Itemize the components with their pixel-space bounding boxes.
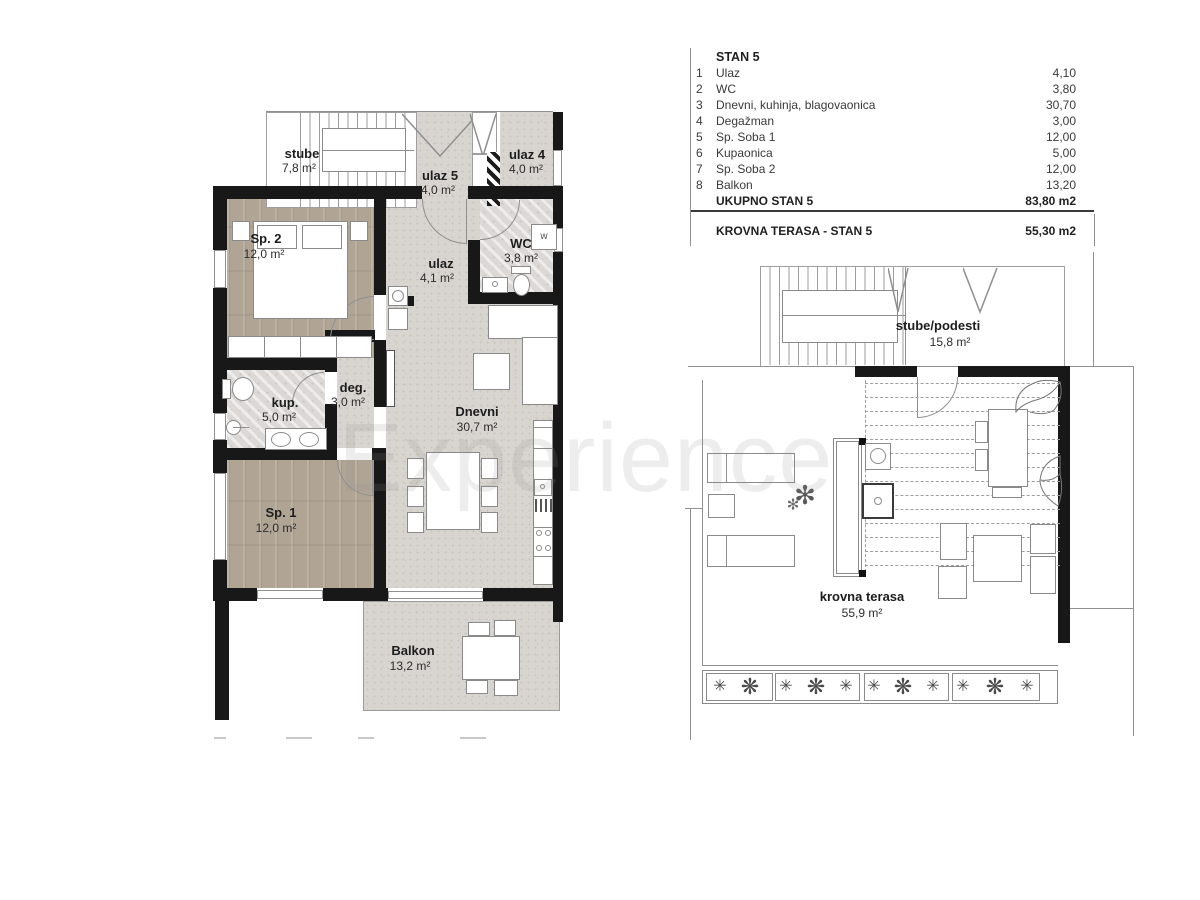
pergola-beam: [865, 495, 1060, 496]
pergola-beam: [865, 439, 1060, 440]
outer-line: [690, 508, 691, 740]
building-edge-line: [1093, 252, 1094, 366]
shrub-icon: ✳: [926, 679, 939, 695]
post: [859, 570, 866, 577]
chair: [975, 421, 988, 443]
grill-knob: [874, 497, 882, 505]
outer-line-right: [1133, 366, 1134, 736]
wall-terrace-top: [855, 366, 917, 377]
terrace-bottom-edge: [702, 665, 1058, 666]
lounger-headrest: [726, 454, 727, 482]
floorplan-sheet: w: [0, 0, 1200, 900]
lounge-table: [973, 535, 1022, 582]
pergola-beam: [865, 481, 1060, 482]
sink-bowl: [870, 448, 886, 464]
plan-right: ✻ ✻ ✳ ❋ ✳ ❋: [0, 0, 1200, 900]
shrub-icon: ✳: [779, 679, 792, 695]
tree-icon: ❋: [741, 676, 759, 698]
sun-lounger: [707, 453, 795, 483]
chair: [1030, 524, 1056, 554]
tree-icon: ❋: [986, 676, 1004, 698]
outdoor-counter-inner: [836, 441, 859, 574]
chair: [1030, 556, 1056, 594]
chair: [940, 523, 967, 560]
pergola-edge: [865, 380, 866, 577]
outer-tick: [1068, 608, 1133, 609]
room-area-krovna-terasa: 55,9 m²: [842, 606, 883, 620]
room-label-krovna-terasa: krovna terasa: [820, 589, 905, 604]
shrub-icon: ✳: [956, 679, 969, 695]
terrace-dining-table: [988, 409, 1028, 487]
stair-arrow-icon: [963, 266, 999, 316]
room-label-stube-podesti: stube/podesti: [896, 318, 981, 333]
plant-icon: [1032, 452, 1064, 510]
plant-icon: [1012, 376, 1064, 416]
tree-icon: ❋: [894, 676, 912, 698]
potted-plant-icon: ✻: [787, 498, 800, 513]
chair: [975, 449, 988, 471]
lounger-headrest: [726, 536, 727, 566]
bench: [992, 487, 1022, 498]
wall-terrace-right: [1058, 377, 1070, 643]
shrub-icon: ✳: [839, 679, 852, 695]
shrub-icon: ✳: [867, 679, 880, 695]
side-table: [708, 494, 735, 518]
pergola-beam: [865, 467, 1060, 468]
pergola-beam: [865, 509, 1060, 510]
outer-tick: [685, 508, 702, 509]
tree-icon: ❋: [807, 676, 825, 698]
pergola-beam: [865, 425, 1060, 426]
chair: [938, 566, 967, 599]
shrub-icon: ✳: [1020, 679, 1033, 695]
shrub-icon: ✳: [713, 679, 726, 695]
stair-arrow-icon: [888, 266, 910, 316]
stair-inner-rail: [782, 290, 898, 343]
terrace-left-edge: [702, 380, 703, 666]
sun-lounger: [707, 535, 795, 567]
pergola-beam: [865, 453, 1060, 454]
room-area-stube-podesti: 15,8 m²: [930, 335, 971, 349]
stair-direction-line: [782, 315, 905, 316]
